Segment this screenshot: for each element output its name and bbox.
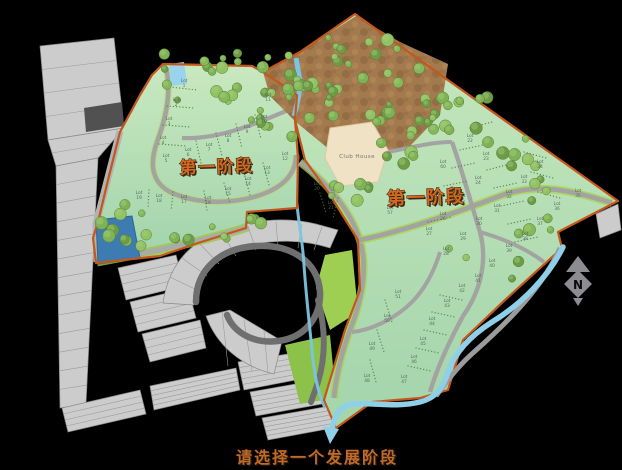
lot-label-13: Lot13 <box>264 165 271 176</box>
tree-icon <box>376 138 386 148</box>
lot-label-12: Lot12 <box>282 151 289 162</box>
tree-icon <box>282 83 293 94</box>
tree-icon <box>384 107 395 118</box>
north-label: N <box>573 278 583 292</box>
lot-label-22: Lot22 <box>467 133 474 144</box>
tree-icon <box>114 208 126 220</box>
lot-label-30: Lot30 <box>476 216 483 227</box>
tree-icon <box>304 113 315 124</box>
lot-label-16: Lot16 <box>205 195 212 206</box>
tree-icon <box>409 151 419 161</box>
lot-label-31: Lot31 <box>494 203 501 214</box>
tree-icon <box>522 135 529 142</box>
tree-icon <box>463 254 470 261</box>
lot-label-36: Lot36 <box>554 201 561 212</box>
tree-icon <box>220 233 227 240</box>
lot-label-35: Lot35 <box>575 188 582 199</box>
tree-icon <box>328 111 338 121</box>
tree-icon <box>382 152 392 162</box>
tree-icon <box>365 38 373 46</box>
tree-icon <box>220 55 226 61</box>
tree-icon <box>522 153 534 165</box>
tree-icon <box>200 57 209 66</box>
lot-label-18: Lot18 <box>156 193 163 204</box>
lot-label-48: Lot48 <box>364 373 371 384</box>
tree-icon <box>257 61 269 73</box>
tree-icon <box>208 67 216 75</box>
lot-label-26: Lot26 <box>440 211 447 222</box>
lot-label-24: Lot24 <box>475 175 482 186</box>
phase-west-label[interactable]: 第一阶段 第一阶段 <box>179 155 255 180</box>
tree-icon <box>233 49 242 58</box>
tree-icon <box>255 217 267 229</box>
tree-icon <box>357 73 368 84</box>
tree-icon <box>293 81 303 91</box>
lot-label-19: Lot19 <box>136 190 143 201</box>
tree-icon <box>303 81 313 91</box>
lot-label-34: Lot34 <box>537 159 544 170</box>
tree-icon <box>508 148 520 160</box>
lot-label-42: Lot42 <box>459 283 466 294</box>
tree-icon <box>248 117 255 124</box>
tree-icon <box>234 58 241 65</box>
tree-icon <box>141 229 152 240</box>
lot-label-23: Lot23 <box>483 151 490 162</box>
lot-label-33: Lot33 <box>521 174 528 185</box>
lot-label-10: Lot10 <box>261 114 268 125</box>
tree-icon <box>384 69 392 77</box>
tree-icon <box>162 80 171 89</box>
lot-label-41: Lot41 <box>475 273 482 284</box>
lot-label-49: Lot49 <box>369 341 376 352</box>
tree-icon <box>265 54 271 60</box>
tree-icon <box>528 196 536 204</box>
tree-icon <box>423 100 431 108</box>
tree-icon <box>542 187 550 195</box>
tree-icon <box>443 101 452 110</box>
lot-label-40: Lot40 <box>489 258 496 269</box>
tree-icon <box>547 227 554 234</box>
tree-icon <box>331 53 337 59</box>
tree-icon <box>529 178 540 189</box>
tree-icon <box>219 91 230 102</box>
tree-icon <box>370 49 381 60</box>
lot-label-20: Lot20 <box>314 181 321 192</box>
lot-label-46: Lot46 <box>411 354 418 365</box>
lot-label-51: Lot51 <box>395 289 402 300</box>
phase-east-label[interactable]: 第一阶段 第一阶段 <box>387 185 467 211</box>
tree-icon <box>136 241 147 252</box>
lot-label-43: Lot43 <box>444 298 451 309</box>
phase-selection-map: Club House Lot1Lot2Lot3Lot4Lot5Lot6Lot7L… <box>0 0 622 470</box>
tree-icon <box>381 33 394 46</box>
tree-icon <box>120 235 130 245</box>
tree-icon <box>398 157 410 169</box>
tree-icon <box>482 137 493 148</box>
phase-east-text[interactable]: 第一阶段 <box>387 185 466 210</box>
tree-icon <box>444 125 454 135</box>
lot-label-39: Lot39 <box>506 243 513 254</box>
tree-icon <box>543 214 552 223</box>
tree-icon <box>393 77 403 87</box>
site-plan-svg: Club House Lot1Lot2Lot3Lot4Lot5Lot6Lot7L… <box>0 0 622 470</box>
tree-icon <box>475 94 484 103</box>
lot-label-60: Lot60 <box>440 159 447 170</box>
lot-label-11: Lot11 <box>265 92 272 103</box>
tree-icon <box>456 97 464 105</box>
tree-icon <box>496 147 509 160</box>
tree-icon <box>287 131 298 142</box>
tree-icon <box>159 49 170 60</box>
tree-icon <box>386 102 392 108</box>
tree-icon <box>430 114 436 120</box>
lot-label-29: Lot29 <box>460 231 467 242</box>
tree-icon <box>334 182 344 192</box>
tree-icon <box>326 95 332 101</box>
tree-icon <box>102 229 115 242</box>
tree-icon <box>414 63 425 74</box>
tree-icon <box>183 234 195 246</box>
lot-label-17: Lot17 <box>181 194 188 205</box>
tree-icon <box>138 210 145 217</box>
lot-label-45: Lot45 <box>420 336 427 347</box>
lot-label-28: Lot28 <box>443 246 450 257</box>
tree-icon <box>508 275 515 282</box>
lot-label-44: Lot44 <box>429 316 436 327</box>
tree-icon <box>209 224 215 230</box>
tree-icon <box>470 122 482 134</box>
tree-icon <box>337 45 346 54</box>
tree-icon <box>325 35 331 41</box>
tree-icon <box>513 256 524 267</box>
tree-icon <box>257 107 264 114</box>
tree-icon <box>286 94 293 101</box>
tree-icon <box>285 52 293 60</box>
lot-label-37: Lot37 <box>537 216 544 227</box>
tree-icon <box>216 61 228 73</box>
tree-icon <box>328 192 335 199</box>
lot-label-32: Lot32 <box>506 189 513 200</box>
tree-icon <box>406 131 414 139</box>
lot-label-21: Lot21 <box>328 200 335 211</box>
tree-icon <box>95 217 108 230</box>
tree-icon <box>415 116 425 126</box>
caption-text: 请选择一个发展阶段 <box>236 448 398 467</box>
lot-label-27: Lot27 <box>426 226 433 237</box>
tree-icon <box>365 109 376 120</box>
tree-icon <box>345 61 352 68</box>
lot-label-38: Lot38 <box>522 231 529 242</box>
tree-icon <box>169 232 179 242</box>
tree-icon <box>161 65 168 72</box>
tree-icon <box>506 161 517 172</box>
club-house-label: Club House <box>339 154 375 160</box>
lot-label-50: Lot50 <box>384 313 391 324</box>
phase-west-text[interactable]: 第一阶段 <box>179 155 254 179</box>
tree-icon <box>354 178 366 190</box>
caption: 请选择一个发展阶段 请选择一个发展阶段 <box>236 448 399 468</box>
tree-icon <box>247 215 254 222</box>
tree-icon <box>393 45 400 52</box>
tree-icon <box>351 194 363 206</box>
lot-label-47: Lot47 <box>401 374 408 385</box>
lot-label-15: Lot15 <box>225 186 232 197</box>
